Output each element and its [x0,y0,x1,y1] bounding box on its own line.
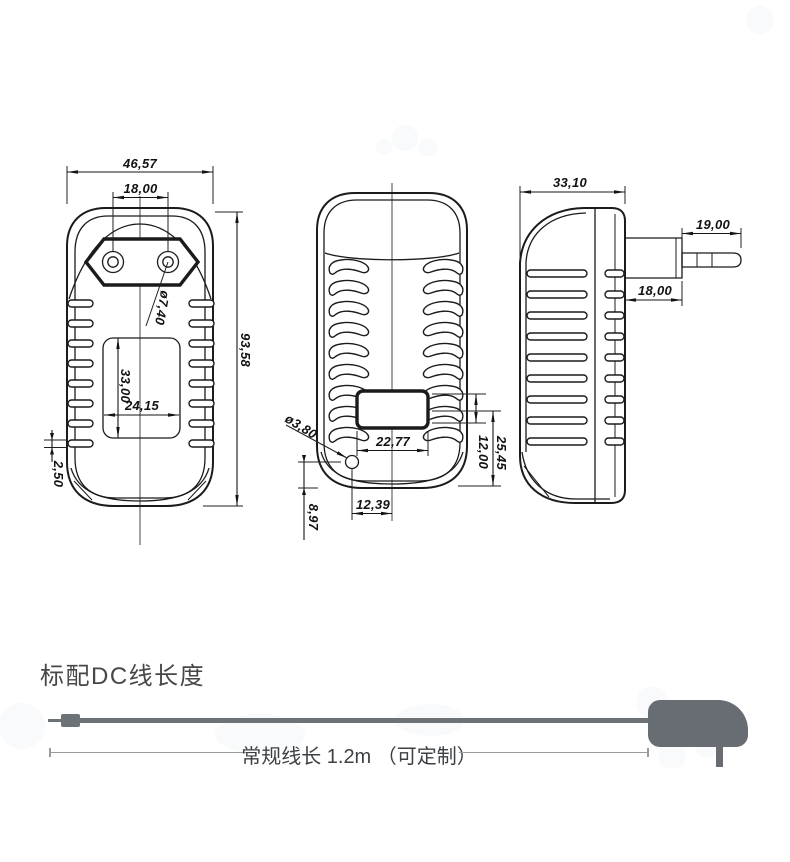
side-view-drawing [520,208,741,503]
side-dimensions: 33,10 19,00 18,00 [520,175,741,306]
cable-dim-tick-right [647,748,649,757]
dim-front-overall-height: 93,58 [238,333,253,368]
front-label-recess [103,338,180,438]
dim-back-hole-offset-x: 12,39 [356,497,391,512]
dim-side-pin-length: 19,00 [696,217,731,232]
adapter-body-silhouette [648,700,748,747]
watermark-blobs [376,6,774,156]
dim-front-bottom-rib: 2,50 [51,460,66,488]
dc-connector-plug [61,714,80,727]
dim-front-label-width: 24,15 [124,398,160,413]
dc-cable [79,718,649,723]
cable-dim-line-right [459,752,648,753]
dim-front-pin-hole-diameter: ø7,40 [152,289,173,326]
back-label-recess [357,391,428,428]
dc-connector-tip [48,719,62,722]
dim-back-recess-width: 22,77 [375,434,411,449]
dim-front-overall-width: 46,57 [122,156,158,171]
plug-base [625,238,682,278]
dim-side-body-depth: 33,10 [553,175,588,190]
dim-back-hole-diameter: ø3,80 [282,411,320,442]
screw-hole [346,456,359,469]
dim-back-hole-offset-y: 8,97 [306,504,321,531]
back-view-drawing [317,183,467,521]
cable-length-label: 常规线长 1.2m （可定制） [229,740,489,769]
dim-back-recess-height: 12,00 [476,435,491,470]
adapter-dimension-page: 46,57 18,00 ø7,40 93,58 33,00 24,15 2,50 [0,0,790,862]
dim-back-recess-to-bottom: 25,45 [494,435,509,471]
adapter-pin-silhouette [716,747,723,767]
cable-dim-line-left [50,752,250,753]
front-vent-slots [68,300,214,447]
technical-drawing: 46,57 18,00 ø7,40 93,58 33,00 24,15 2,50 [0,0,790,640]
dim-side-base-depth: 18,00 [638,283,673,298]
front-view-drawing [67,196,214,545]
side-vent-slots [527,270,624,445]
dim-front-pin-spacing: 18,00 [123,181,158,196]
